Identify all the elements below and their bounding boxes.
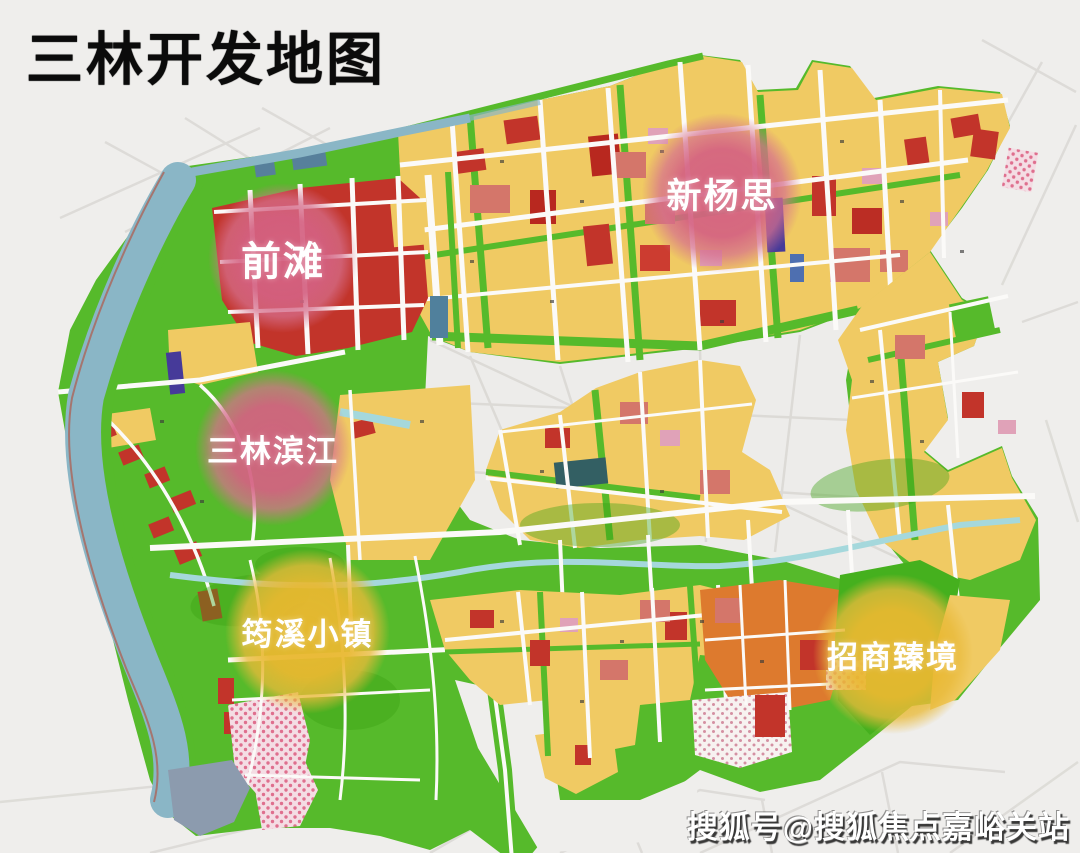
- district-badge-sanlin-binjiang: 三林滨江: [195, 370, 351, 526]
- map-screenshot: 三林开发地图 前滩 新杨思 三林滨江 筠溪小镇 招商臻境 搜狐号@搜狐焦点嘉峪关…: [0, 0, 1080, 853]
- district-label-zhaoshang-zhenjing: 招商臻境: [827, 632, 959, 677]
- district-label-sanlin-binjiang: 三林滨江: [207, 426, 339, 471]
- page-title: 三林开发地图: [26, 14, 386, 96]
- district-label-qiantan: 前滩: [241, 229, 325, 287]
- district-badge-yunxi-town: 筠溪小镇: [225, 549, 390, 714]
- watermark-text: 搜狐号@搜狐焦点嘉峪关站: [687, 802, 1070, 847]
- district-badge-qiantan: 前滩: [208, 183, 358, 333]
- district-badge-zhaoshang-zhenjing: 招商臻境: [813, 574, 973, 734]
- district-label-yunxi-town: 筠溪小镇: [242, 609, 374, 654]
- district-badge-xinyangsi: 新杨思: [642, 113, 802, 273]
- district-label-xinyangsi: 新杨思: [666, 168, 777, 219]
